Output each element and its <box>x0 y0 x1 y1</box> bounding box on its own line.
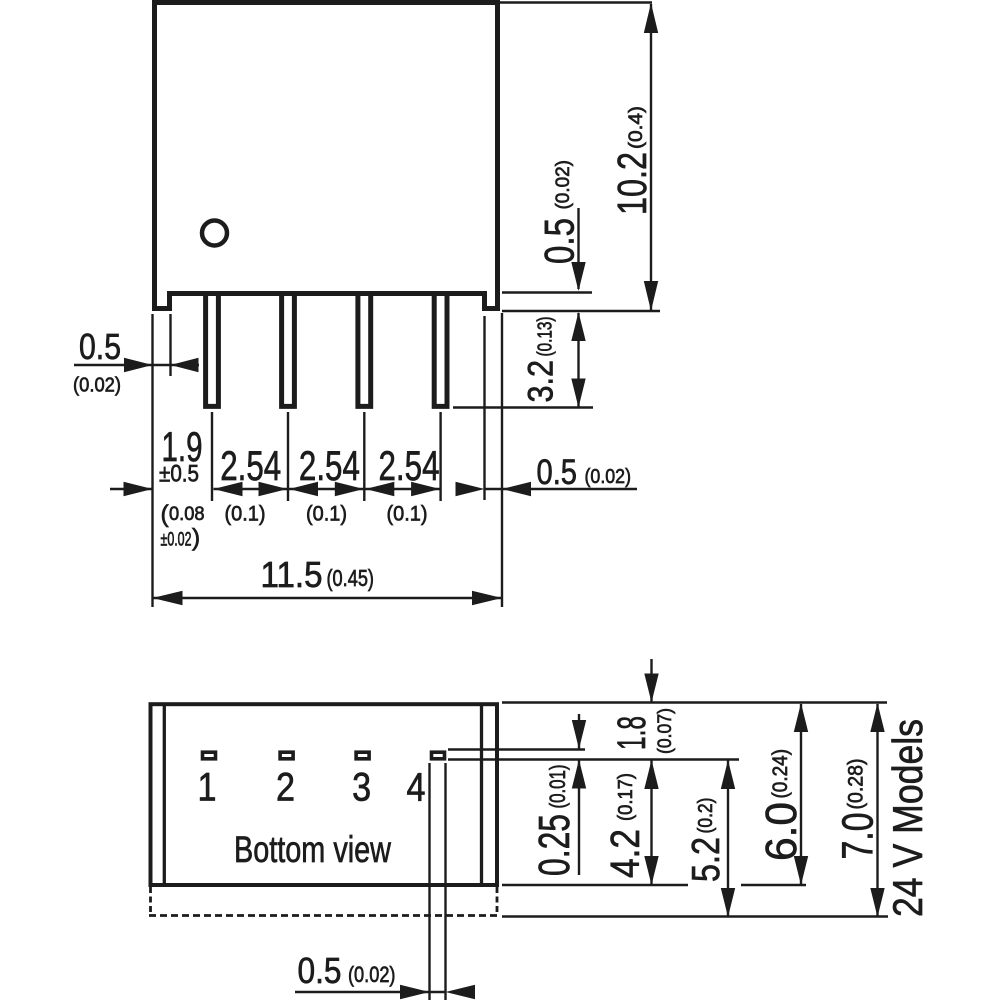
svg-text:11.5: 11.5 <box>261 554 323 595</box>
svg-text:3: 3 <box>352 766 371 810</box>
svg-text:7.0: 7.0 <box>834 813 883 860</box>
svg-text:4: 4 <box>407 766 426 810</box>
svg-text:±0.02: ±0.02 <box>161 530 192 551</box>
svg-text:±0.5: ±0.5 <box>159 461 199 488</box>
svg-text:(0.1): (0.1) <box>306 502 347 526</box>
svg-text:(0.02): (0.02) <box>73 375 121 397</box>
svg-text:0.5: 0.5 <box>537 453 578 492</box>
svg-text:(0.01): (0.01) <box>545 765 570 809</box>
svg-text:4.2: 4.2 <box>602 829 648 878</box>
svg-text:(0.02): (0.02) <box>585 465 632 488</box>
svg-text:2.54: 2.54 <box>379 442 440 489</box>
svg-text:0.5: 0.5 <box>536 218 583 264</box>
svg-text:(0.17): (0.17) <box>615 773 637 821</box>
svg-text:(0.4): (0.4) <box>625 106 647 149</box>
svg-text:): ) <box>192 525 200 552</box>
svg-text:5.2: 5.2 <box>685 837 728 882</box>
svg-text:2.54: 2.54 <box>299 442 360 489</box>
svg-text:2.54: 2.54 <box>220 442 281 489</box>
svg-text:1.8: 1.8 <box>610 716 654 750</box>
svg-text:1: 1 <box>198 766 217 810</box>
svg-text:(0.24): (0.24) <box>769 749 792 799</box>
svg-text:3.2: 3.2 <box>522 360 561 403</box>
svg-text:6.0: 6.0 <box>757 802 806 861</box>
svg-text:(0.1): (0.1) <box>225 502 266 526</box>
svg-text:2: 2 <box>276 766 295 810</box>
svg-text:24 V Models: 24 V Models <box>884 719 931 917</box>
svg-text:(0.1): (0.1) <box>387 502 428 526</box>
svg-text:(0.02): (0.02) <box>348 962 396 987</box>
svg-text:(0.02): (0.02) <box>552 160 574 210</box>
svg-text:10.2: 10.2 <box>609 152 655 215</box>
svg-text:0.5: 0.5 <box>298 950 342 991</box>
svg-text:(0.28): (0.28) <box>845 759 868 810</box>
svg-text:0.25: 0.25 <box>530 814 579 876</box>
svg-text:(0.45): (0.45) <box>327 565 375 591</box>
svg-text:(0.13): (0.13) <box>535 317 557 357</box>
svg-text:(0.2): (0.2) <box>695 798 717 834</box>
svg-text:(0.07): (0.07) <box>654 708 676 754</box>
svg-text:0.08: 0.08 <box>169 504 205 525</box>
svg-text:Bottom view: Bottom view <box>234 828 392 870</box>
svg-text:0.5: 0.5 <box>79 326 121 367</box>
